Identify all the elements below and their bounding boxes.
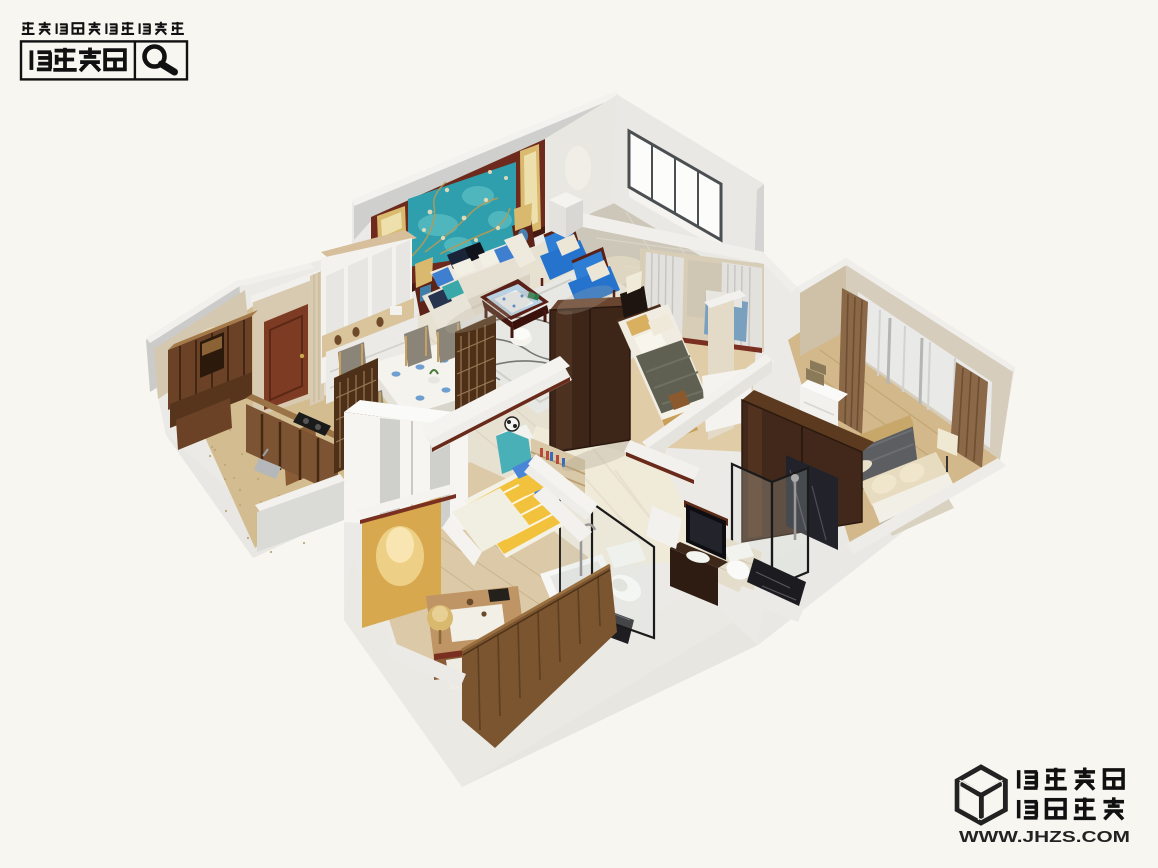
- svg-text:WWW.JHZS.COM: WWW.JHZS.COM: [959, 829, 1130, 846]
